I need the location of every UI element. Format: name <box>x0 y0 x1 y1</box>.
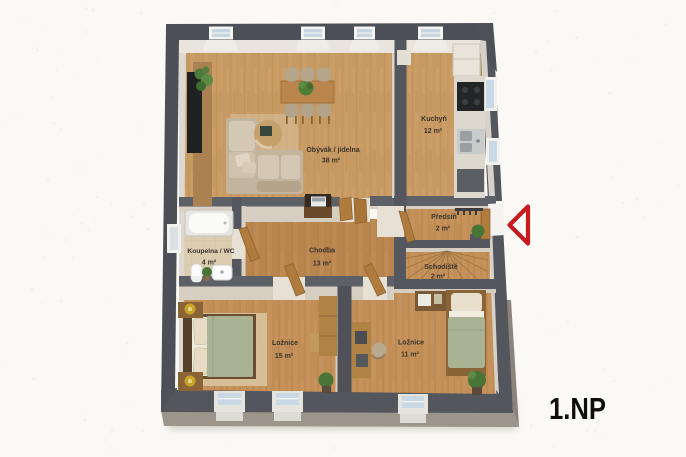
svg-text:Chodba: Chodba <box>309 248 335 255</box>
svg-text:2 m²: 2 m² <box>436 226 451 233</box>
svg-text:15 m²: 15 m² <box>275 353 294 360</box>
svg-text:1.NP: 1.NP <box>549 391 606 426</box>
svg-text:Schodiště: Schodiště <box>424 264 458 271</box>
svg-text:12 m²: 12 m² <box>424 128 443 135</box>
svg-text:Ložnice: Ložnice <box>398 340 424 347</box>
svg-text:4 m²: 4 m² <box>202 260 217 267</box>
svg-text:11 m²: 11 m² <box>401 352 420 359</box>
svg-text:38 m²: 38 m² <box>322 158 341 165</box>
svg-text:Koupelna / WC: Koupelna / WC <box>187 248 234 255</box>
svg-text:13 m²: 13 m² <box>313 261 332 268</box>
svg-text:Předsíň: Předsíň <box>431 214 457 221</box>
svg-text:2 m²: 2 m² <box>431 274 446 281</box>
svg-text:Obývák / jídelna: Obývák / jídelna <box>306 147 359 154</box>
svg-text:Kuchyň: Kuchyň <box>421 116 447 123</box>
svg-text:Ložnice: Ložnice <box>272 340 298 347</box>
